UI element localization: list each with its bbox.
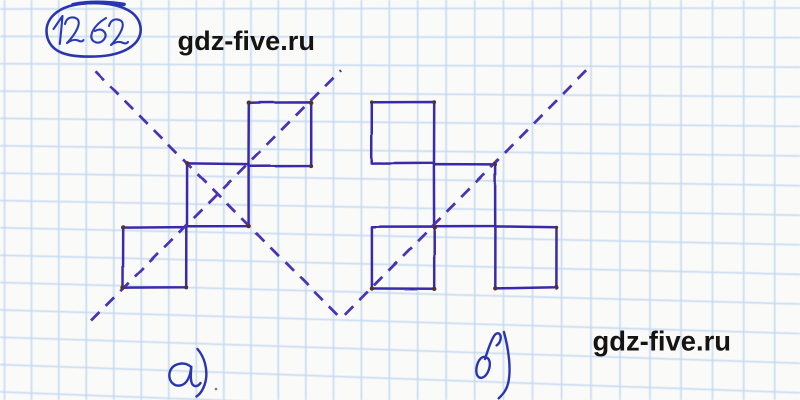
svg-text:gdz-five.ru: gdz-five.ru	[593, 326, 731, 357]
svg-text:gdz-five.ru: gdz-five.ru	[178, 25, 315, 56]
